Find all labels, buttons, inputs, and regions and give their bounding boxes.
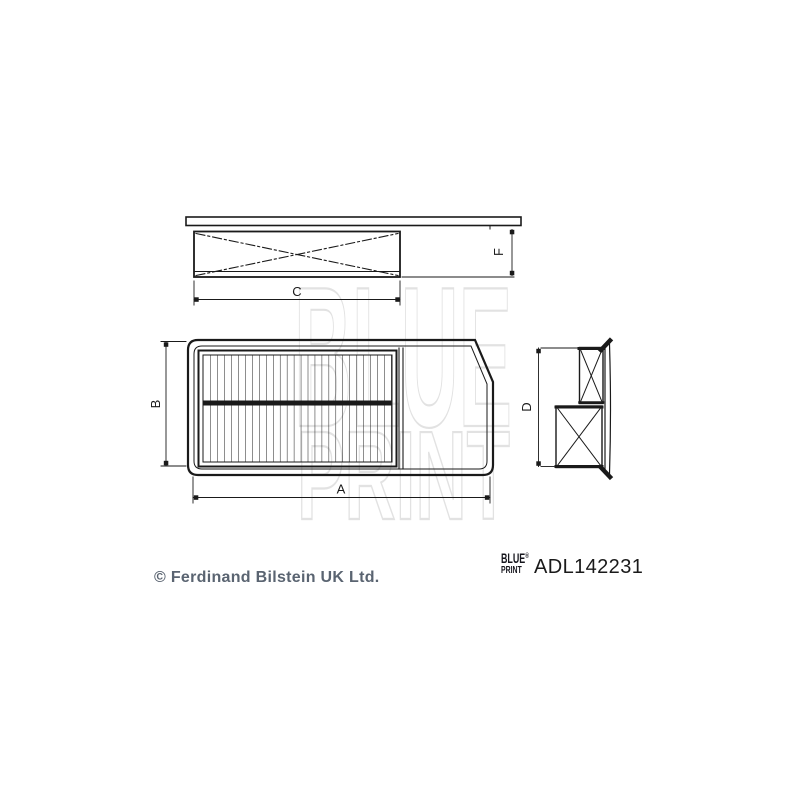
dim-c-end-left <box>194 297 199 302</box>
technical-drawing-canvas: BLUE PRINT F C <box>0 0 800 800</box>
dimension-label-c: C <box>292 284 301 299</box>
filter-pleats <box>204 356 392 462</box>
dim-a-end-left <box>194 495 199 500</box>
dim-d-end-top <box>536 349 541 354</box>
side-strip-line-2 <box>610 344 611 474</box>
dim-f-end-top <box>510 230 515 235</box>
center-support-band <box>203 401 392 406</box>
dimension-label-a: A <box>337 482 346 497</box>
copyright-text: © Ferdinand Bilstein UK Ltd. <box>154 569 380 587</box>
dimension-label-b: B <box>148 400 163 409</box>
dim-b-end-bottom <box>164 461 169 466</box>
dimension-label-d: D <box>519 402 534 411</box>
registered-trademark: ® <box>525 551 529 560</box>
dim-d-end-bottom <box>536 461 541 466</box>
dim-a-end-right <box>485 495 490 500</box>
product-drawing-image: BLUE PRINT F C <box>0 0 800 800</box>
dim-f-end-bottom <box>510 271 515 276</box>
part-number: ADL142231 <box>534 556 643 579</box>
flange-bar <box>186 217 521 226</box>
side-end-view <box>536 341 610 478</box>
blueprint-logo-print: PRINT <box>501 565 527 575</box>
dim-c-end-right <box>395 297 400 302</box>
dimension-label-f: F <box>491 248 506 256</box>
dim-b-end-top <box>164 342 169 347</box>
